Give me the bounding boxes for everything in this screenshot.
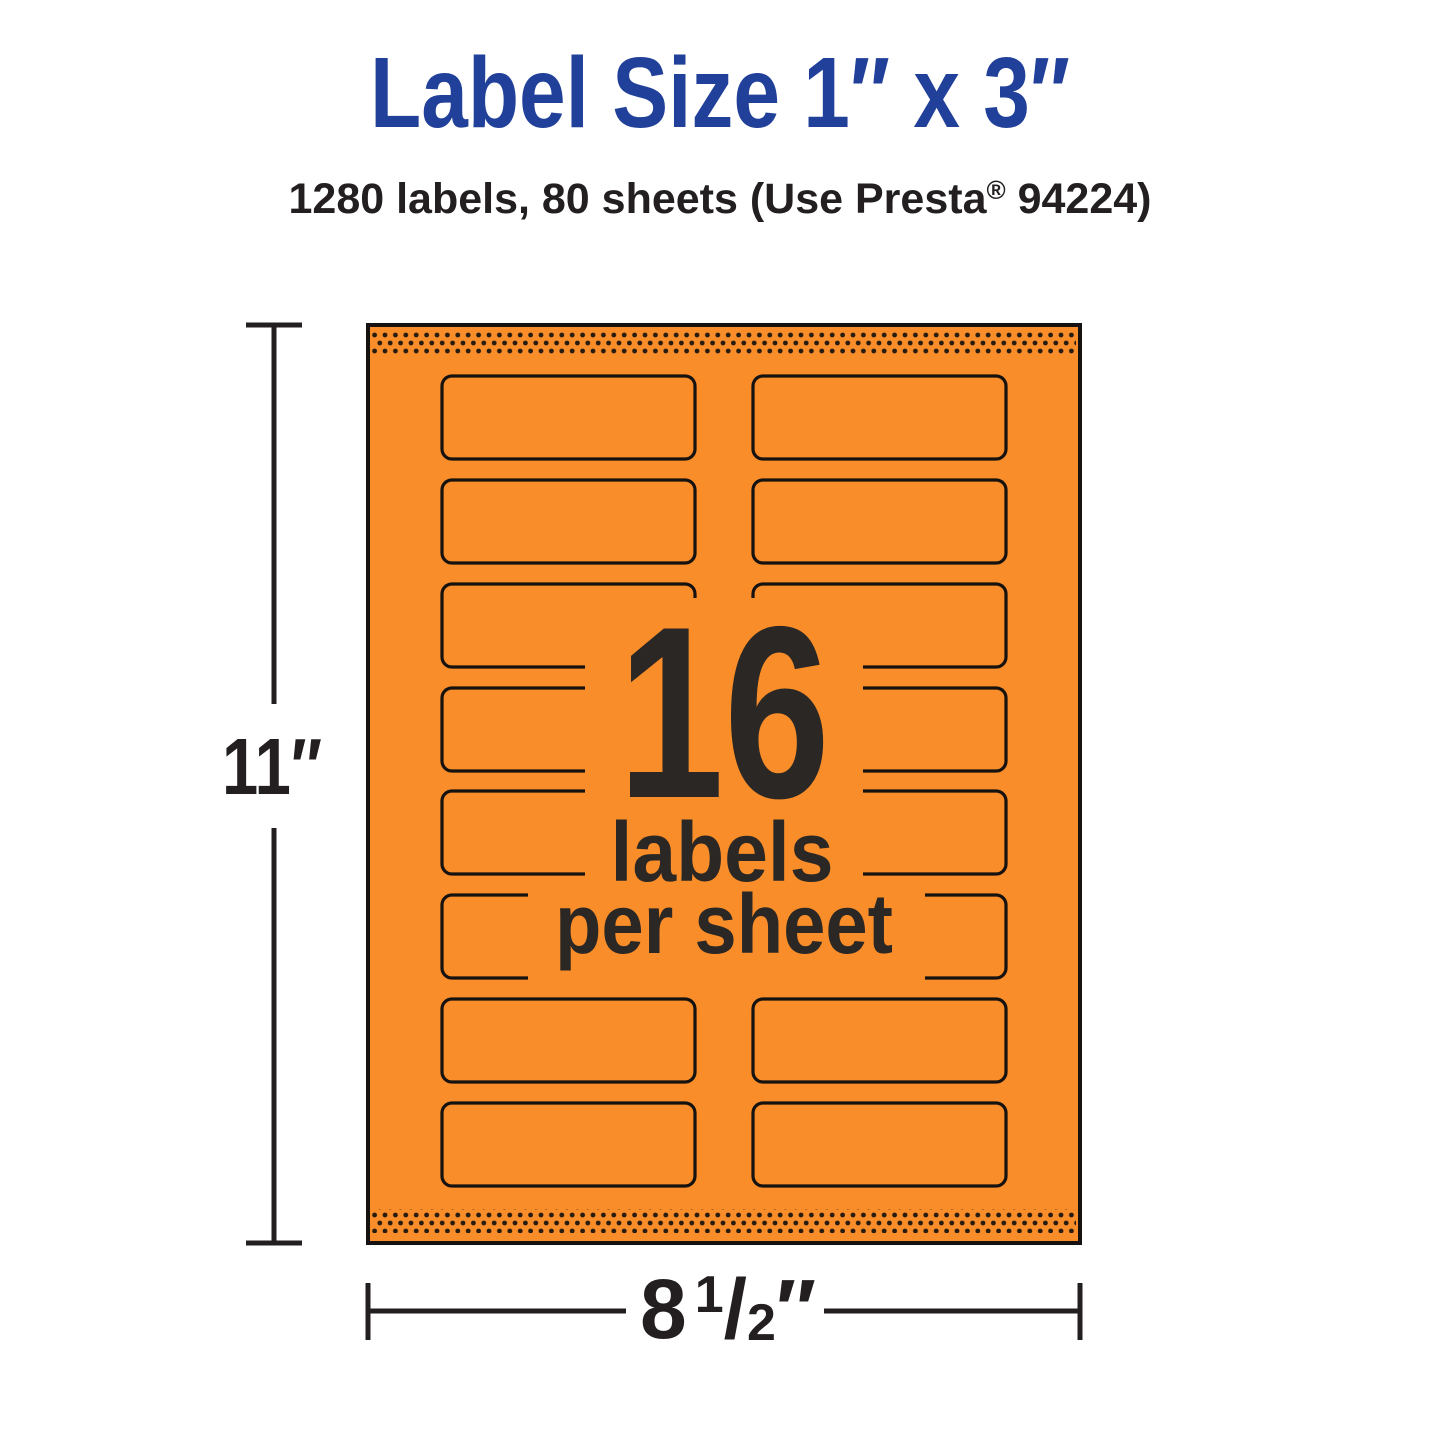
height-dimension-label: 11″: [222, 722, 322, 811]
height-dimension: 11″: [222, 325, 322, 1243]
subtitle-sku: 94224): [1006, 175, 1152, 223]
width-fraction-slash: /: [724, 1262, 747, 1356]
bottom-perforation-band: [372, 1209, 1076, 1233]
width-fraction-denominator: 2: [747, 1294, 776, 1352]
subtitle-text: 1280 labels, 80 sheets (Use Presta: [288, 175, 987, 223]
width-whole-number: 8: [640, 1262, 687, 1356]
width-dimension-label: 81/2″: [640, 1262, 816, 1356]
page-title: Label Size 1″ x 3″: [370, 37, 1070, 149]
subtitle: 1280 labels, 80 sheets (Use Presta® 9422…: [288, 175, 1151, 223]
width-inch-mark: ″: [776, 1262, 816, 1356]
width-dimension: 81/2″: [368, 1262, 1080, 1356]
registered-trademark-symbol: ®: [986, 175, 1005, 205]
width-fraction-numerator: 1: [695, 1266, 724, 1324]
labels-caption-line2: per sheet: [555, 877, 893, 971]
label-sheet-infographic: Label Size 1″ x 3″ 1280 labels, 80 sheet…: [0, 0, 1440, 1440]
top-perforation-band: [372, 331, 1076, 355]
